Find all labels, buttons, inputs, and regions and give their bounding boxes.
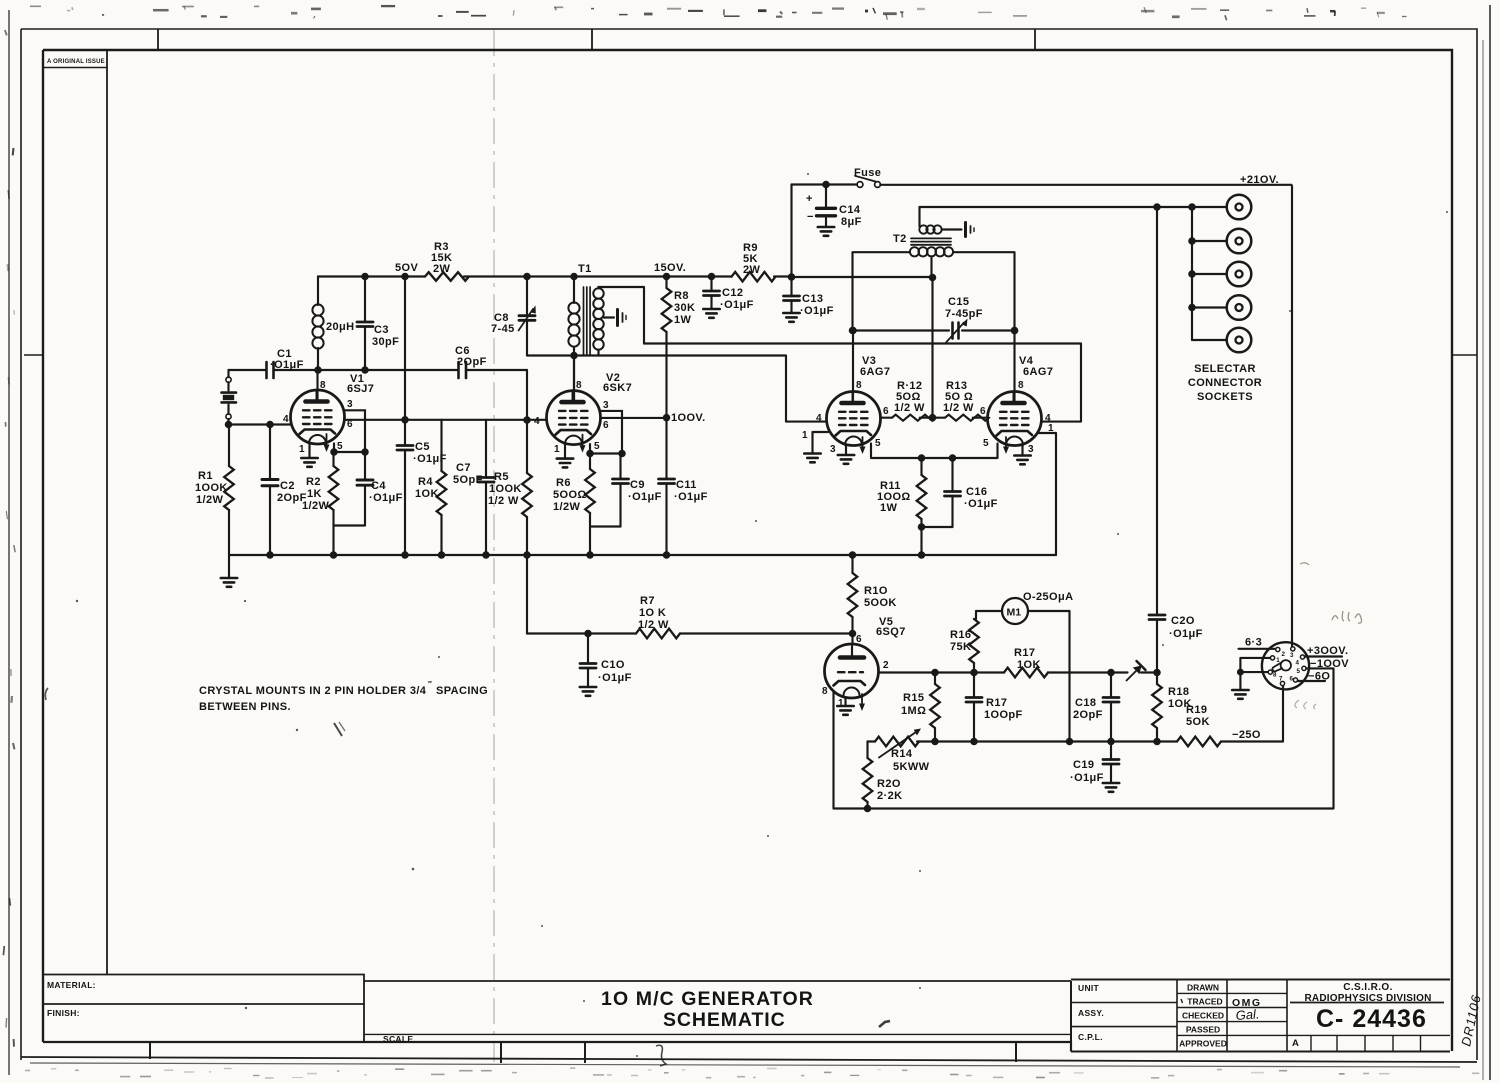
svg-text:1: 1 (299, 444, 305, 455)
svg-text:·O1μF: ·O1μF (598, 672, 632, 684)
svg-text:6·3: 6·3 (1245, 637, 1262, 649)
svg-text:·O1μF: ·O1μF (628, 491, 662, 503)
svg-text:1/2W: 1/2W (553, 501, 580, 513)
svg-text:4: 4 (1296, 660, 1300, 667)
svg-text:SPACING: SPACING (436, 685, 488, 697)
svg-text:5: 5 (983, 438, 989, 449)
svg-text:3: 3 (1290, 652, 1294, 659)
svg-text:·O1μF: ·O1μF (720, 299, 754, 311)
svg-text:3: 3 (347, 399, 353, 410)
svg-text:CHECKED: CHECKED (1182, 1011, 1224, 1021)
svg-text:8μF: 8μF (841, 216, 862, 228)
svg-text:A ORIGINAL ISSUE: A ORIGINAL ISSUE (47, 59, 105, 65)
svg-text:2: 2 (1282, 651, 1286, 658)
svg-text:R8: R8 (674, 290, 689, 302)
svg-text:UNIT: UNIT (1078, 983, 1100, 993)
svg-text:T1: T1 (578, 263, 592, 275)
svg-text:1/2 W: 1/2 W (943, 402, 974, 414)
svg-text:3: 3 (1028, 444, 1034, 455)
svg-text:CONNECTOR: CONNECTOR (1188, 377, 1262, 389)
svg-text:C16: C16 (966, 486, 987, 498)
svg-text:R15: R15 (903, 692, 924, 704)
svg-text:1O K: 1O K (639, 607, 666, 619)
svg-text:30K: 30K (674, 302, 695, 314)
svg-text:C3: C3 (374, 324, 389, 336)
svg-text:C4: C4 (371, 480, 386, 492)
svg-text:C.P.L.: C.P.L. (1078, 1032, 1103, 1042)
svg-text:8: 8 (856, 380, 862, 391)
svg-text:1W: 1W (880, 502, 898, 514)
svg-text:R16: R16 (950, 629, 971, 641)
svg-text:″: ″ (428, 680, 432, 689)
svg-text:APPROVED: APPROVED (1179, 1039, 1227, 1049)
svg-text:1W: 1W (674, 314, 692, 326)
svg-text:6: 6 (856, 634, 862, 645)
svg-text:·O1μF: ·O1μF (800, 305, 834, 317)
svg-text:6SJ7: 6SJ7 (347, 383, 374, 395)
svg-text:−: − (807, 211, 814, 223)
svg-text:R5: R5 (494, 471, 509, 483)
svg-text:·O1μF: ·O1μF (1169, 628, 1203, 640)
svg-text:C.S.I.R.O.: C.S.I.R.O. (1343, 982, 1393, 993)
svg-text:1OOK: 1OOK (195, 482, 228, 494)
svg-text:1OOV.: 1OOV. (671, 412, 706, 424)
svg-text:R1O: R1O (864, 585, 888, 597)
svg-text:+: + (806, 193, 813, 205)
svg-text:C1O: C1O (601, 659, 625, 671)
svg-text:5OpF: 5OpF (453, 474, 483, 486)
svg-text:C5: C5 (415, 441, 430, 453)
svg-text:SELECTAR: SELECTAR (1194, 363, 1256, 375)
svg-text:6: 6 (980, 406, 986, 417)
svg-text:C13: C13 (802, 293, 823, 305)
svg-text:R17: R17 (1014, 647, 1035, 659)
svg-text:1K: 1K (307, 488, 322, 500)
svg-text:2OpF: 2OpF (1073, 709, 1103, 721)
svg-text:2: 2 (883, 660, 889, 671)
svg-text:6: 6 (603, 420, 609, 431)
svg-text:1: 1 (1276, 657, 1280, 664)
svg-text:5: 5 (594, 441, 600, 452)
svg-text:4: 4 (283, 414, 289, 425)
svg-text:Fuse: Fuse (854, 167, 881, 179)
svg-text:8: 8 (1018, 380, 1024, 391)
svg-text:5OOK: 5OOK (864, 597, 897, 609)
svg-text:·O1μF: ·O1μF (964, 498, 998, 510)
svg-text:30pF: 30pF (372, 336, 399, 348)
svg-text:5OV: 5OV (395, 262, 418, 274)
svg-text:RADIOPHYSICS DIVISION: RADIOPHYSICS DIVISION (1305, 993, 1432, 1004)
svg-text:5OOΩ: 5OOΩ (553, 489, 587, 501)
svg-text:8: 8 (822, 686, 828, 697)
svg-text:C14: C14 (839, 204, 861, 216)
svg-text:+21OV.: +21OV. (1240, 174, 1279, 186)
svg-text:SOCKETS: SOCKETS (1197, 391, 1253, 403)
svg-text:1: 1 (838, 698, 844, 709)
svg-text:5: 5 (1297, 668, 1301, 675)
svg-text:·O1μF: ·O1μF (674, 491, 708, 503)
svg-text:C7: C7 (456, 462, 471, 474)
svg-text:R18: R18 (1168, 686, 1189, 698)
svg-text:8: 8 (576, 380, 582, 391)
svg-text:6AG7: 6AG7 (1023, 366, 1053, 378)
svg-text:6: 6 (883, 406, 889, 417)
svg-text:·O1μF: ·O1μF (270, 359, 304, 371)
svg-text:1: 1 (802, 430, 808, 441)
svg-text:SCHEMATIC: SCHEMATIC (663, 1009, 786, 1031)
svg-text:3: 3 (603, 400, 609, 411)
svg-text:PASSED: PASSED (1186, 1025, 1220, 1035)
svg-text:·O1μF: ·O1μF (1070, 772, 1104, 784)
svg-text:R2: R2 (306, 476, 321, 488)
svg-text:DRAWN: DRAWN (1187, 983, 1219, 993)
svg-text:5KWW: 5KWW (893, 761, 930, 773)
svg-text:BETWEEN PINS.: BETWEEN PINS. (199, 701, 291, 713)
svg-text:MATERIAL:: MATERIAL: (47, 980, 96, 990)
svg-text:ASSY.: ASSY. (1078, 1008, 1104, 1018)
svg-text:R17: R17 (986, 697, 1007, 709)
svg-text:R4: R4 (418, 476, 433, 488)
svg-text:R7: R7 (640, 595, 655, 607)
svg-text:2·2K: 2·2K (877, 790, 902, 802)
svg-text:SCALE: SCALE (383, 1034, 413, 1044)
svg-text:−1OOV: −1OOV (1310, 658, 1349, 670)
svg-text:7: 7 (1279, 676, 1283, 683)
svg-text:R2O: R2O (877, 778, 901, 790)
svg-text:2W: 2W (433, 263, 451, 275)
svg-text:1/2 W: 1/2 W (488, 495, 519, 507)
svg-text:15OV.: 15OV. (654, 262, 686, 274)
svg-text:T2: T2 (893, 233, 907, 245)
svg-text:6: 6 (1290, 676, 1294, 683)
svg-text:7-45pF: 7-45pF (945, 308, 983, 320)
svg-text:75K: 75K (950, 641, 971, 653)
svg-text:Gal.: Gal. (1235, 1006, 1260, 1023)
svg-text:2W: 2W (743, 264, 761, 276)
svg-text:1OOpF: 1OOpF (984, 709, 1023, 721)
svg-text:6SK7: 6SK7 (603, 382, 632, 394)
svg-text:6AG7: 6AG7 (860, 366, 890, 378)
svg-text:4: 4 (816, 413, 822, 424)
svg-text:1/2 W: 1/2 W (638, 619, 669, 631)
svg-text:A: A (1292, 1038, 1299, 1049)
svg-text:8: 8 (1273, 672, 1277, 679)
svg-text:FINISH:: FINISH: (47, 1008, 80, 1018)
svg-text:C- 24436: C- 24436 (1316, 1005, 1427, 1033)
svg-text:20μH: 20μH (326, 321, 355, 333)
svg-text:C12: C12 (722, 287, 743, 299)
svg-text:C2: C2 (280, 480, 295, 492)
svg-text:4: 4 (534, 416, 540, 427)
svg-text:1: 1 (554, 444, 560, 455)
svg-text:1OOK: 1OOK (489, 483, 522, 495)
svg-text:·O1μF: ·O1μF (369, 492, 403, 504)
svg-text:6SQ7: 6SQ7 (876, 626, 906, 638)
svg-text:3: 3 (830, 444, 836, 455)
svg-text:R19: R19 (1186, 704, 1207, 716)
svg-text:+3OOV.: +3OOV. (1307, 645, 1348, 657)
svg-text:−25O: −25O (1232, 729, 1261, 741)
svg-text:8: 8 (320, 380, 326, 391)
svg-text:5: 5 (875, 438, 881, 449)
svg-text:CRYSTAL MOUNTS IN 2 PIN H: CRYSTAL MOUNTS IN 2 PIN HOLDER 3/4 (199, 685, 427, 697)
svg-text:R1: R1 (198, 470, 213, 482)
svg-text:1MΩ: 1MΩ (901, 705, 926, 717)
svg-text:1OK: 1OK (1017, 659, 1041, 671)
svg-text:−6O: −6O (1308, 671, 1330, 683)
svg-text:C15: C15 (948, 296, 969, 308)
svg-text:1/2W: 1/2W (302, 500, 329, 512)
svg-text:C9: C9 (630, 479, 645, 491)
svg-text:7-45: 7-45 (491, 323, 515, 335)
svg-text:1OK: 1OK (415, 488, 439, 500)
svg-text:M1: M1 (1007, 607, 1022, 619)
svg-text:C2O: C2O (1171, 615, 1195, 627)
svg-text:2OpF: 2OpF (457, 356, 487, 368)
svg-text:TRACED: TRACED (1187, 997, 1222, 1007)
svg-text:C18: C18 (1075, 697, 1096, 709)
svg-text:1/2 W: 1/2 W (894, 402, 925, 414)
svg-text:5OK: 5OK (1186, 716, 1210, 728)
svg-text:5: 5 (337, 441, 343, 452)
svg-text:C11: C11 (676, 479, 697, 491)
svg-text:1/2W: 1/2W (196, 494, 223, 506)
svg-text:C19: C19 (1073, 759, 1094, 771)
svg-text:R14: R14 (891, 748, 913, 760)
svg-text:1O M/C GENERATOR: 1O M/C GENERATOR (601, 988, 814, 1010)
svg-text:R6: R6 (556, 477, 571, 489)
svg-text:O-25OμA: O-25OμA (1023, 591, 1074, 603)
